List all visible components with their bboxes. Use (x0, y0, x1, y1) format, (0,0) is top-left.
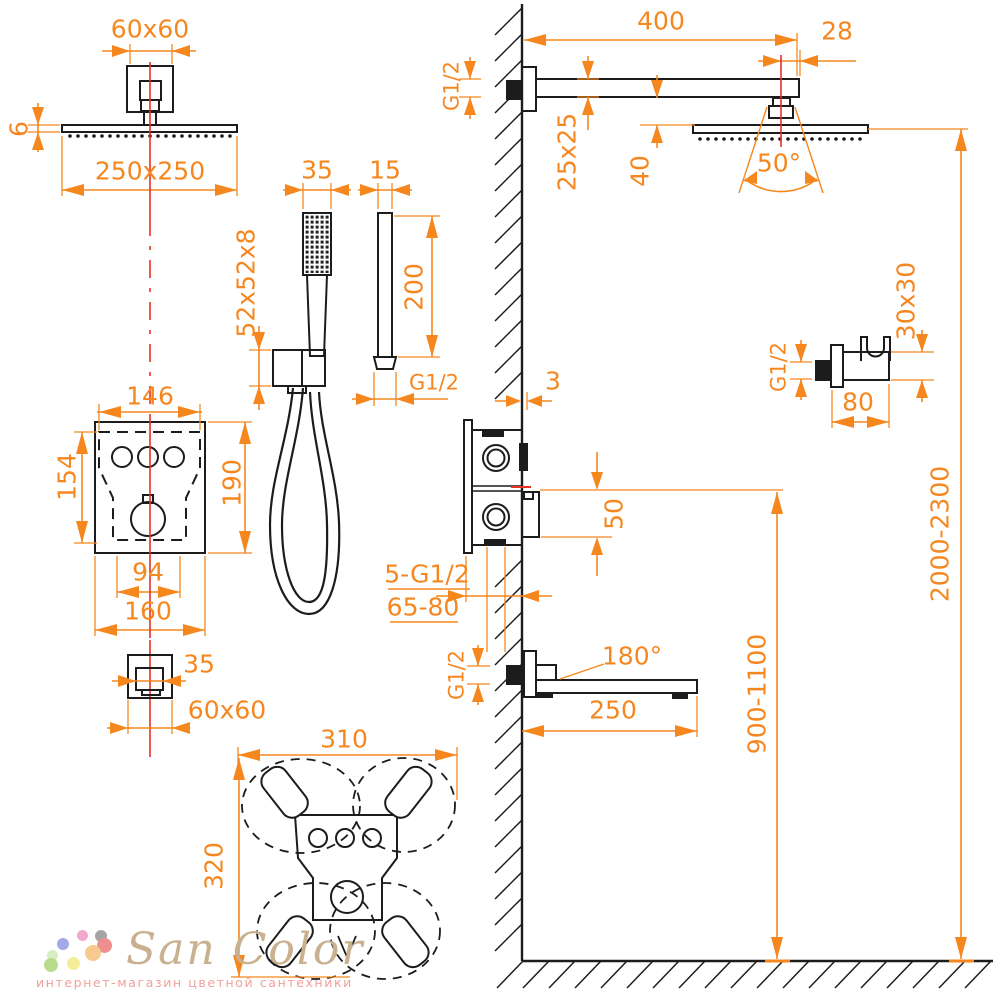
dim-label-handshower-thread: G1/2 (409, 373, 459, 394)
dim-label-holder-section: 30x30 (894, 262, 919, 340)
hand-shower-set (249, 183, 448, 614)
dim-label-head-mount-size: 60x60 (111, 17, 189, 42)
dim-label-ceiling-escutcheon-size: 60x60 (188, 698, 266, 723)
dim-label-head-size: 250x250 (95, 159, 205, 184)
dim-label-panel-width: 160 (124, 599, 172, 624)
dim-label-valve-plate-offset: 3 (545, 369, 561, 394)
logo-dot (44, 958, 58, 972)
dim-label-panel-height: 190 (220, 459, 245, 507)
dim-label-arm-thread: G1/2 (442, 61, 463, 111)
dim-label-panel-width-inner: 146 (126, 384, 174, 409)
dim-label-spout-height-range: 900-1100 (745, 634, 770, 754)
ceiling-escutcheon-view (107, 655, 190, 734)
dim-label-handshower-width: 35 (301, 158, 333, 183)
dim-label-arm-head-offset: 28 (821, 19, 853, 44)
dim-label-panel-feet-span: 94 (132, 560, 164, 585)
dim-label-arm-head-gap: 40 (628, 155, 653, 187)
dim-label-clearance-height: 320 (202, 842, 227, 890)
dim-label-panel-height-inner: 154 (55, 453, 80, 501)
technical-drawing-page: 60x606250x250351552x52x8200G1/2146154190… (0, 0, 1000, 1000)
logo-dot (77, 930, 88, 941)
dim-label-valve-depth-range: 65-80 (387, 595, 460, 620)
wall-arm-side-view (459, 33, 968, 959)
dim-label-clearance-width: 310 (320, 727, 368, 752)
dim-label-arm-section: 25x25 (555, 113, 580, 191)
dim-label-spout-swivel: 180° (602, 644, 662, 669)
logo-dot (67, 957, 80, 970)
dim-label-head-thickness: 6 (7, 121, 32, 137)
brand-logo-text: San Color (126, 924, 364, 975)
dim-label-spout-length: 250 (589, 698, 637, 723)
dim-label-holder-depth: 80 (842, 390, 874, 415)
ceiling-shower-front-view (28, 44, 237, 418)
dim-label-valve-connections: 5-G1/2 (384, 562, 469, 587)
dim-label-head-height-range: 2000-2300 (928, 466, 953, 602)
dim-label-wand-width: 15 (369, 158, 401, 183)
dim-label-spray-angle: 50° (757, 151, 801, 176)
dim-label-spout-thread: G1/2 (447, 650, 468, 700)
dim-label-holder-thread: G1/2 (769, 342, 790, 392)
dim-label-ceiling-escutcheon-inner: 35 (183, 652, 215, 677)
logo-dot (57, 938, 69, 950)
dim-label-arm-length: 400 (637, 9, 685, 34)
logo-dot (85, 945, 101, 961)
brand-tagline: интернет-магазин цветной сантехники (36, 975, 353, 990)
dim-label-wand-length: 200 (402, 263, 427, 311)
dim-label-valve-trim-height: 50 (602, 498, 627, 530)
shower-system-drawing (0, 0, 1000, 1000)
dim-label-holder-size: 52x52x8 (234, 228, 259, 337)
